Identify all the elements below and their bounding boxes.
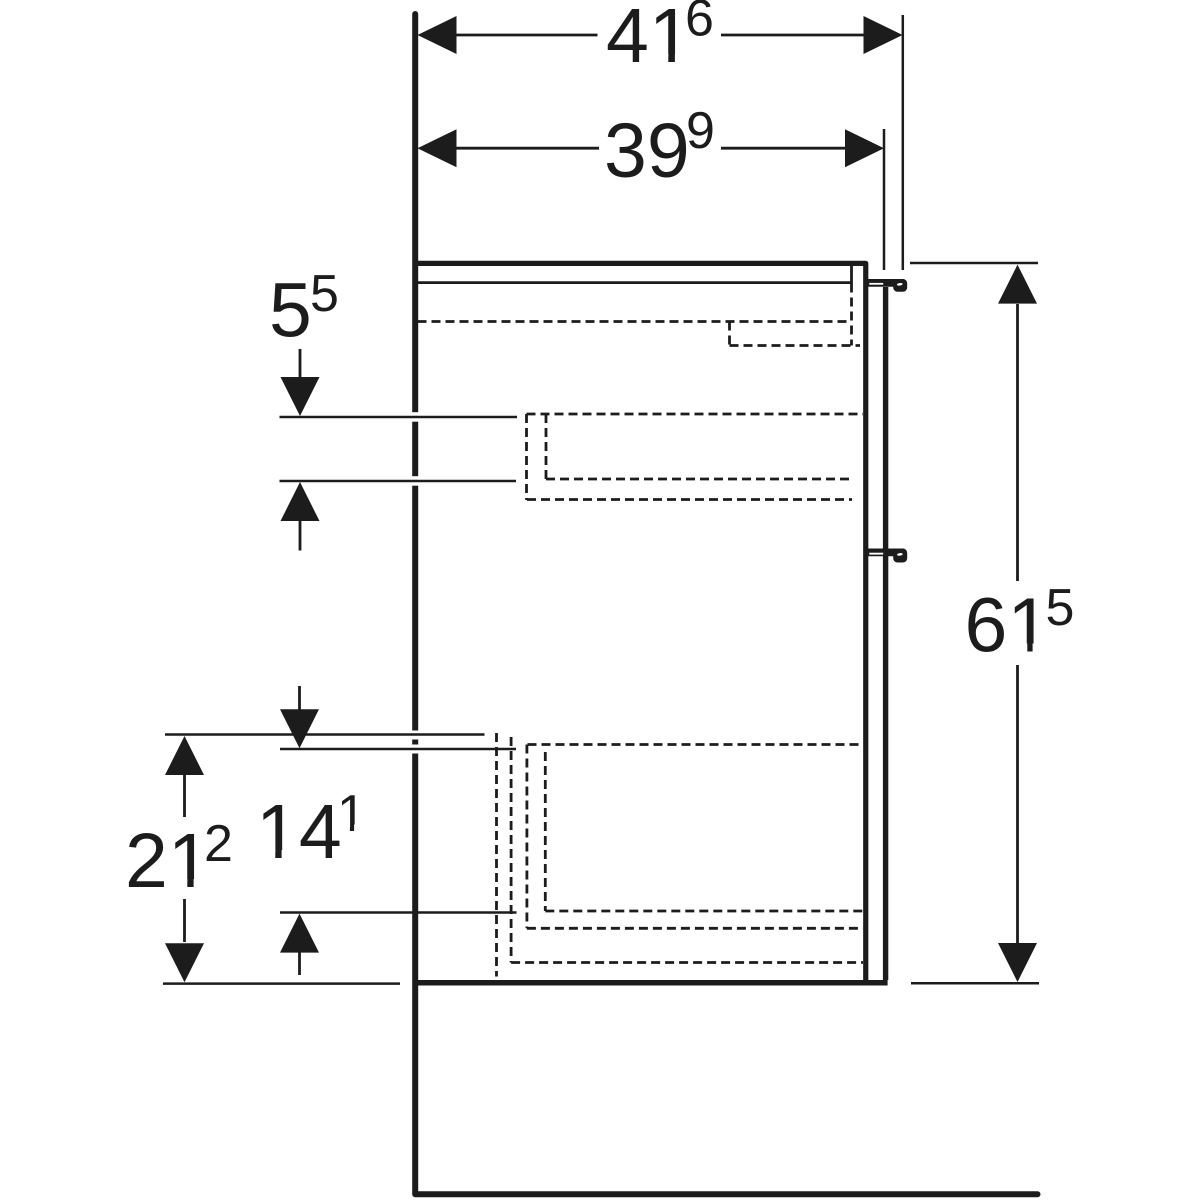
svg-text:6: 6 — [685, 0, 714, 48]
svg-text:39: 39 — [604, 108, 690, 194]
svg-text:61: 61 — [965, 583, 1051, 669]
svg-text:41: 41 — [606, 0, 692, 79]
svg-text:5: 5 — [269, 268, 312, 354]
svg-text:2: 2 — [204, 815, 233, 873]
svg-text:9: 9 — [686, 102, 715, 160]
svg-text:5: 5 — [1046, 579, 1075, 637]
svg-text:21: 21 — [125, 818, 211, 904]
svg-text:14: 14 — [256, 789, 342, 875]
svg-text:5: 5 — [310, 265, 339, 323]
svg-text:1: 1 — [337, 785, 366, 843]
